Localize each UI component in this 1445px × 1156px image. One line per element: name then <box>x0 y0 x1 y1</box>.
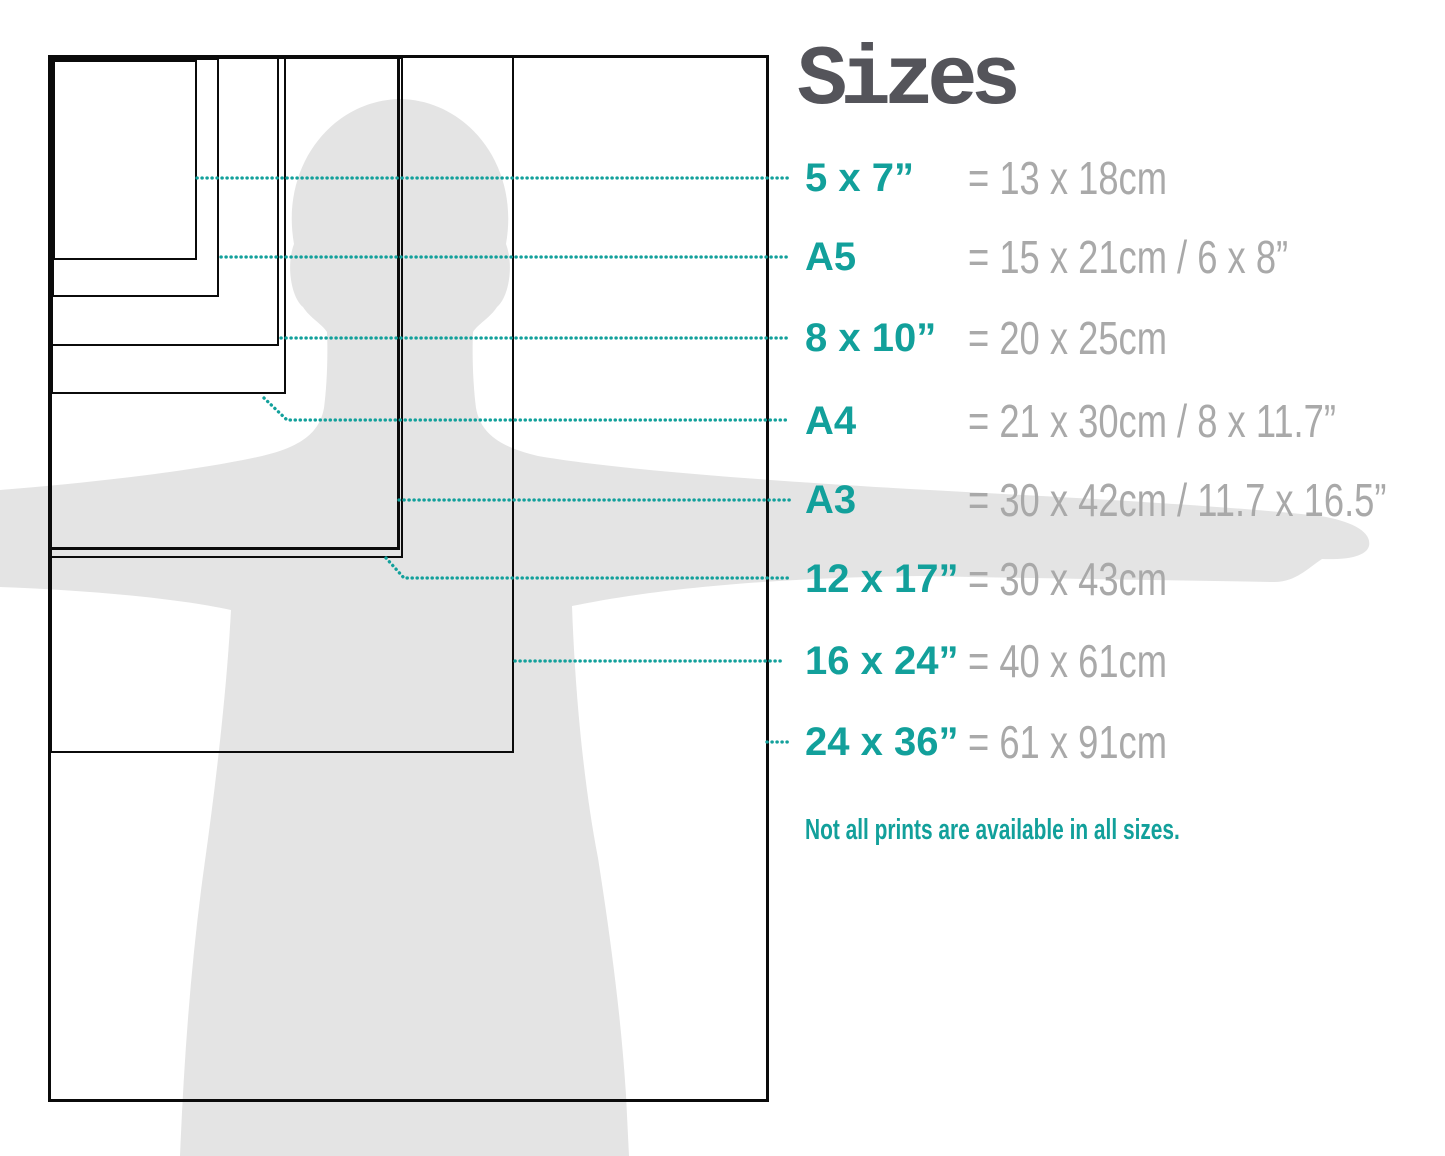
size-row-24x36: 24 x 36”= 61 x 91cm <box>805 716 1220 768</box>
size-label-24x36: 24 x 36” <box>805 720 968 765</box>
size-label-16x24: 16 x 24” <box>805 639 968 684</box>
size-row-5x7: 5 x 7”= 13 x 18cm <box>805 152 1220 204</box>
size-row-12x17: 12 x 17”= 30 x 43cm <box>805 553 1220 605</box>
callout-line-a4 <box>264 398 790 420</box>
size-label-12x17: 12 x 17” <box>805 557 968 602</box>
size-metric-12x17: = 30 x 43cm <box>968 552 1167 606</box>
size-row-16x24: 16 x 24”= 40 x 61cm <box>805 635 1220 687</box>
size-metric-5x7: = 13 x 18cm <box>968 151 1167 205</box>
size-label-a3: A3 <box>805 478 968 523</box>
size-label-a4: A4 <box>805 399 968 444</box>
size-row-a3: A3= 30 x 42cm / 11.7 x 16.5” <box>805 474 1445 526</box>
callout-line-12x17 <box>386 558 790 578</box>
size-guide-diagram: Sizes Not all prints are available in al… <box>0 0 1445 1156</box>
size-metric-a5: = 15 x 21cm / 6 x 8” <box>968 230 1288 284</box>
size-metric-a4: = 21 x 30cm / 8 x 11.7” <box>968 394 1336 448</box>
size-label-5x7: 5 x 7” <box>805 156 968 201</box>
size-label-8x10: 8 x 10” <box>805 316 968 361</box>
callout-lines <box>0 0 1445 1156</box>
size-metric-24x36: = 61 x 91cm <box>968 715 1167 769</box>
size-row-8x10: 8 x 10”= 20 x 25cm <box>805 312 1220 364</box>
availability-note: Not all prints are available in all size… <box>805 814 1180 847</box>
size-metric-8x10: = 20 x 25cm <box>968 311 1167 365</box>
page-title: Sizes <box>797 40 1014 124</box>
size-row-a4: A4= 21 x 30cm / 8 x 11.7” <box>805 395 1434 447</box>
size-metric-16x24: = 40 x 61cm <box>968 634 1167 688</box>
size-metric-a3: = 30 x 42cm / 11.7 x 16.5” <box>968 473 1386 527</box>
size-label-a5: A5 <box>805 235 968 280</box>
size-row-a5: A5= 15 x 21cm / 6 x 8” <box>805 231 1373 283</box>
